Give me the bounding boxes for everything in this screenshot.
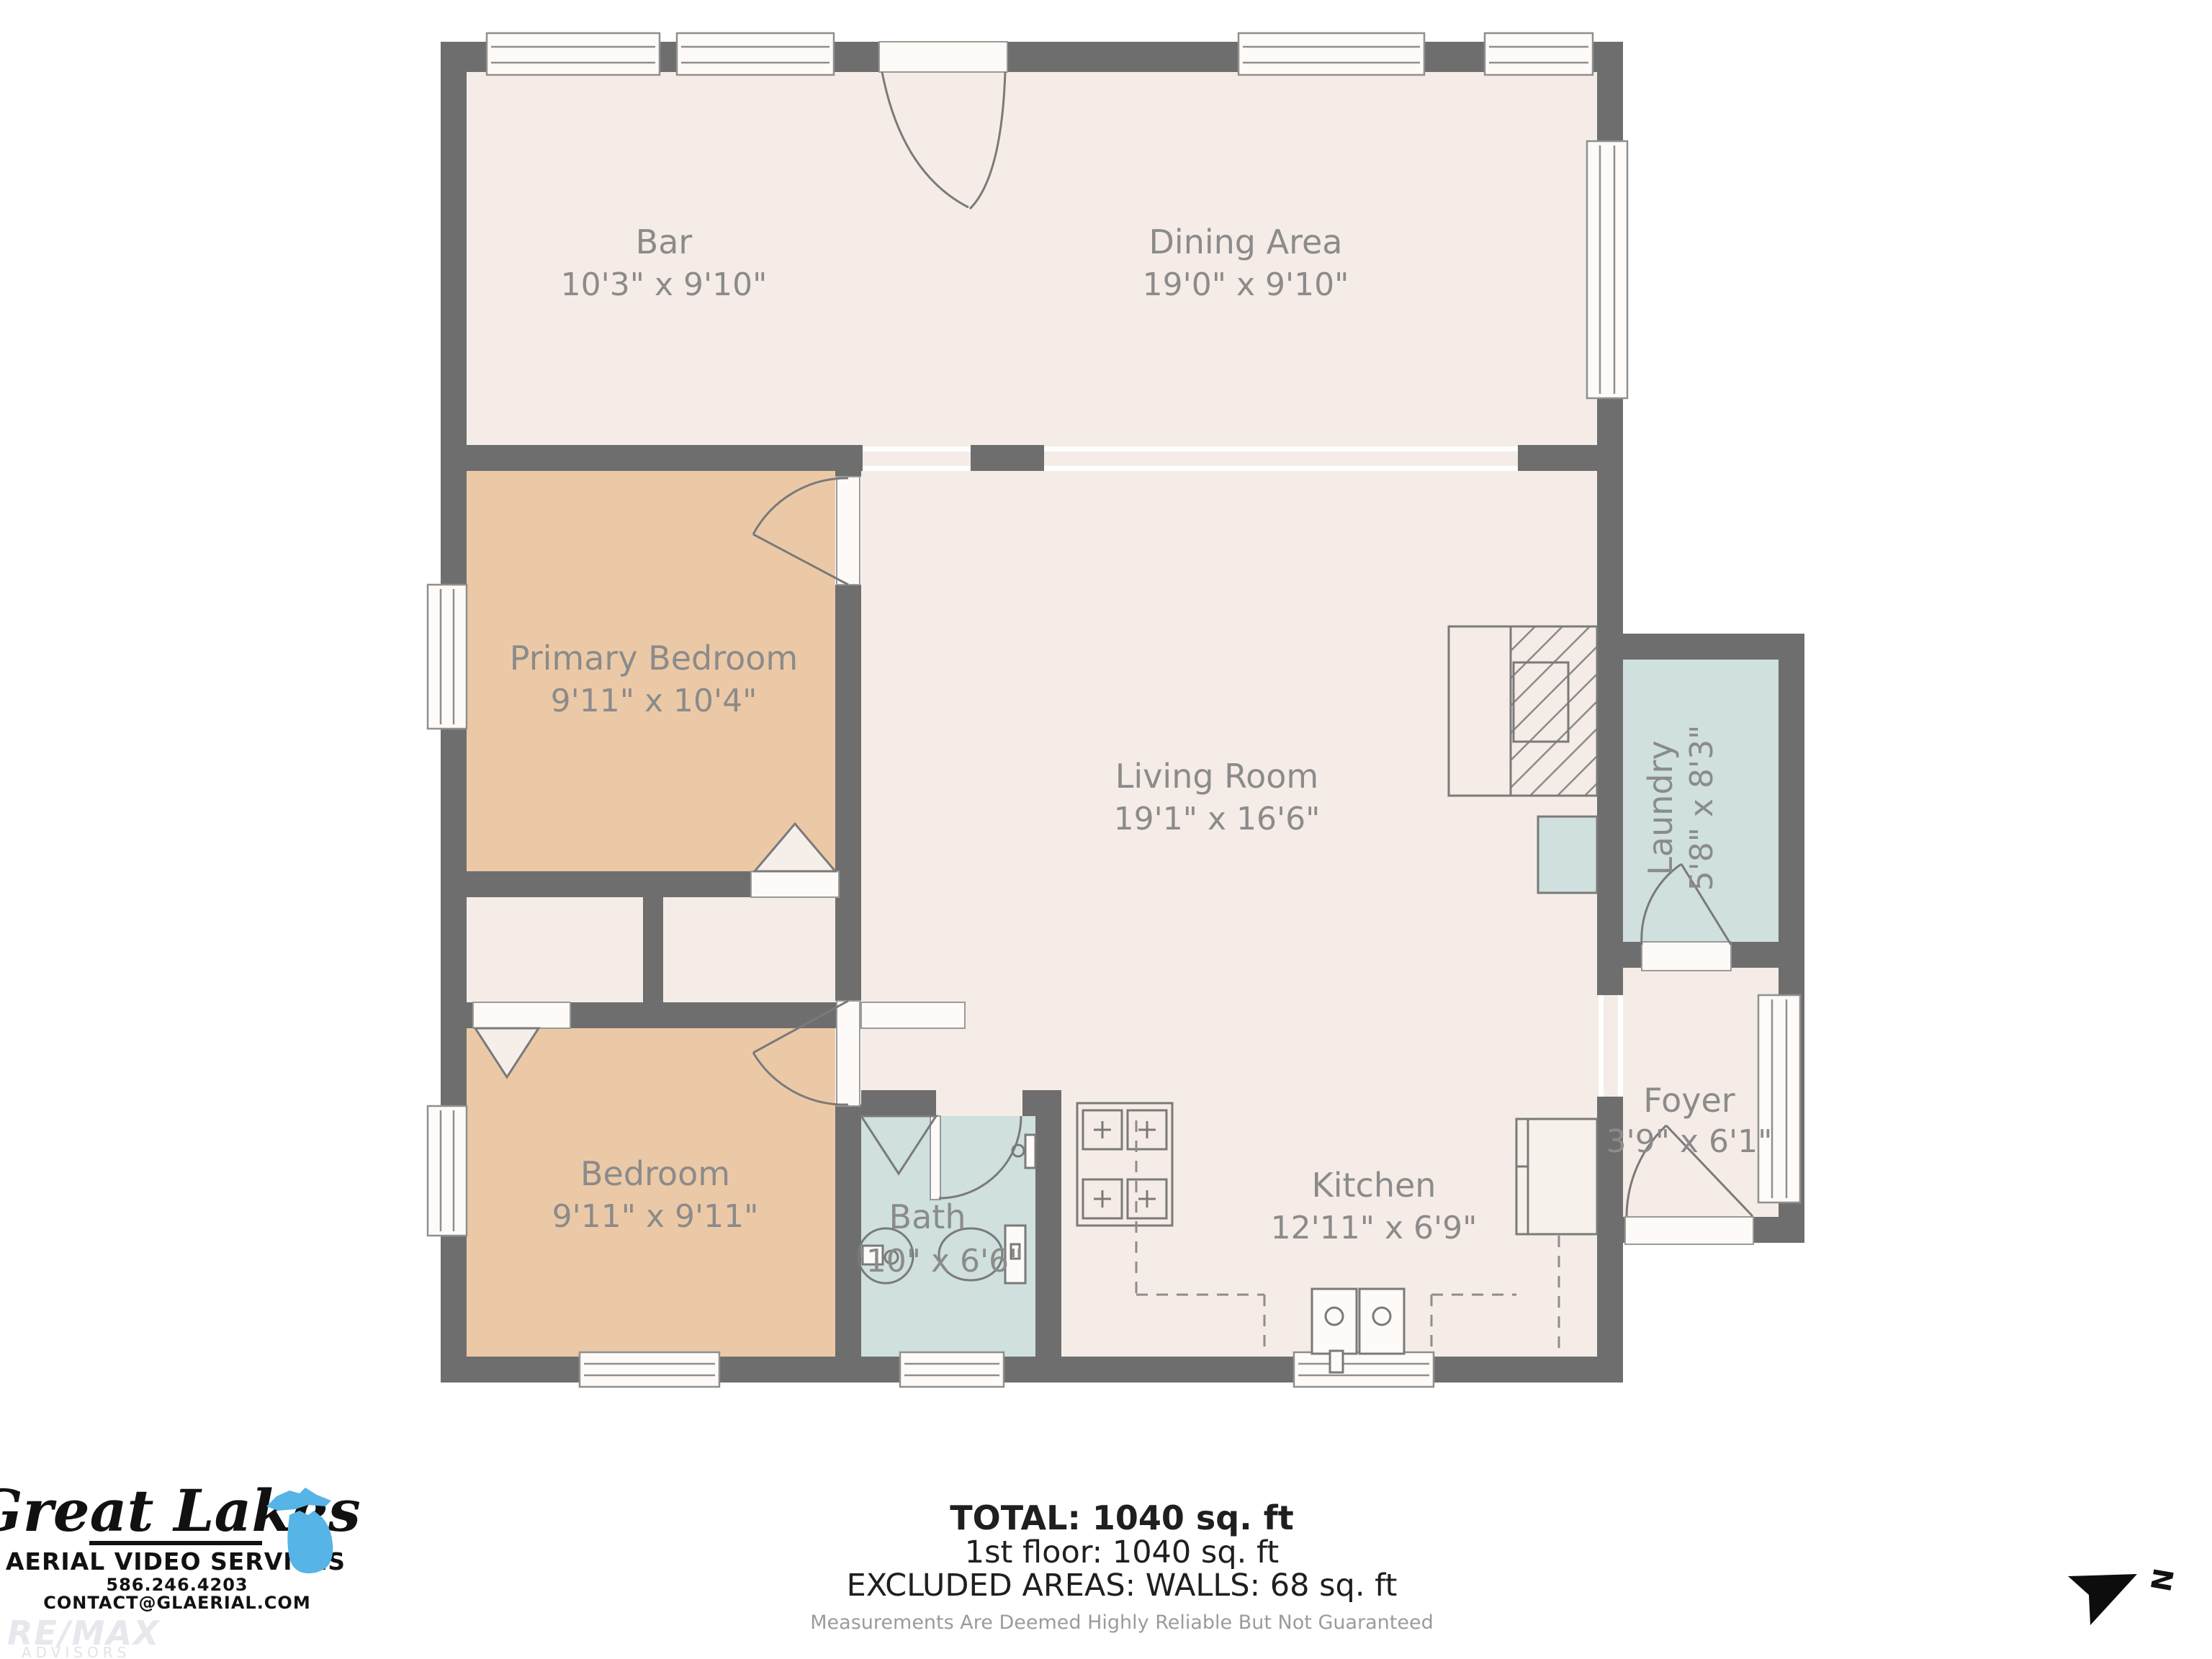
window bbox=[428, 585, 467, 729]
logo-underline bbox=[89, 1541, 262, 1545]
bath-label: Bath bbox=[889, 1197, 966, 1236]
logo-email-text: CONTACT@GLAERIAL.COM bbox=[43, 1593, 310, 1613]
wall-segment bbox=[441, 445, 863, 471]
window bbox=[1485, 33, 1593, 75]
bar-label: Bar bbox=[636, 222, 693, 261]
window bbox=[1294, 1352, 1434, 1387]
primary-bedroom-label: Primary Bedroom bbox=[510, 639, 798, 678]
company-logo: Great Lakes AERIAL VIDEO SERVICES 586.24… bbox=[0, 1477, 361, 1613]
wall-segment bbox=[1035, 1090, 1061, 1357]
foyer-dims: 3'9" x 6'1" bbox=[1606, 1123, 1773, 1160]
compass: N bbox=[2068, 1565, 2179, 1625]
living-room-dims: 19'1" x 16'6" bbox=[1114, 801, 1321, 837]
living-room-label: Living Room bbox=[1115, 757, 1318, 796]
wall-segment bbox=[861, 1090, 936, 1116]
summary-block: TOTAL: 1040 sq. ft 1st floor: 1040 sq. f… bbox=[810, 1498, 1433, 1634]
laundry-dims: 5'8" x 8'3" bbox=[1683, 725, 1720, 891]
wall-segment bbox=[1623, 634, 1804, 660]
opening-line bbox=[863, 466, 971, 471]
bar-dims: 10'3" x 9'10" bbox=[561, 266, 768, 303]
primary-bedroom-dims: 9'11" x 10'4" bbox=[551, 683, 757, 719]
closet-right-floor bbox=[663, 897, 835, 1002]
bedroom-label: Bedroom bbox=[580, 1154, 730, 1193]
wall-segment bbox=[570, 1002, 861, 1028]
window bbox=[428, 1106, 467, 1236]
opening-line bbox=[1044, 446, 1518, 451]
laundry-label: Laundry bbox=[1641, 740, 1680, 875]
total-area-text: TOTAL: 1040 sq. ft bbox=[950, 1498, 1293, 1537]
wall-segment bbox=[971, 445, 1044, 471]
floor-plan-canvas: Bar 10'3" x 9'10" Dining Area 19'0" x 9'… bbox=[0, 0, 2212, 1659]
first-floor-area-text: 1st floor: 1040 sq. ft bbox=[965, 1534, 1279, 1570]
wall-segment bbox=[839, 871, 861, 897]
window bbox=[900, 1352, 1004, 1387]
bedroom-dims: 9'11" x 9'11" bbox=[552, 1198, 759, 1235]
wall-segment bbox=[835, 1105, 861, 1357]
compass-north-icon bbox=[2068, 1574, 2137, 1625]
dining-label: Dining Area bbox=[1149, 222, 1343, 261]
opening-line bbox=[1044, 466, 1518, 471]
foyer-label: Foyer bbox=[1643, 1081, 1735, 1120]
window bbox=[1587, 141, 1627, 398]
window bbox=[677, 33, 834, 75]
window bbox=[487, 33, 660, 75]
remax-watermark: RE/MAX ADVISORS bbox=[7, 1614, 161, 1659]
window bbox=[1758, 995, 1800, 1202]
wall-segment bbox=[441, 1002, 473, 1028]
washer-icon bbox=[1538, 817, 1597, 893]
disclaimer-text: Measurements Are Deemed Highly Reliable … bbox=[810, 1611, 1433, 1634]
wall-segment bbox=[1518, 445, 1597, 471]
kitchen-label: Kitchen bbox=[1312, 1166, 1437, 1205]
wall-segment bbox=[441, 871, 751, 897]
wall-segment bbox=[835, 445, 861, 477]
logo-phone-text: 586.246.4203 bbox=[106, 1575, 248, 1595]
kitchen-dims: 12'11" x 6'9" bbox=[1271, 1210, 1478, 1246]
window bbox=[580, 1352, 719, 1387]
opening-line bbox=[863, 446, 971, 451]
wall-segment bbox=[643, 897, 663, 1002]
compass-north-label: N bbox=[2144, 1565, 2180, 1593]
window bbox=[1238, 33, 1424, 75]
closet-left-floor bbox=[467, 897, 643, 1002]
opening-line bbox=[1618, 995, 1623, 1097]
hall-opening bbox=[861, 1002, 965, 1028]
watermark-sub-text: ADVISORS bbox=[22, 1644, 130, 1659]
fridge-icon bbox=[1516, 1119, 1597, 1234]
wall-segment bbox=[835, 585, 861, 1001]
bath-dims: '10" x 6'6" bbox=[858, 1243, 1024, 1280]
excluded-areas-text: EXCLUDED AREAS: WALLS: 68 sq. ft bbox=[847, 1568, 1398, 1604]
dining-dims: 19'0" x 9'10" bbox=[1143, 266, 1349, 303]
opening-line bbox=[1599, 995, 1604, 1097]
